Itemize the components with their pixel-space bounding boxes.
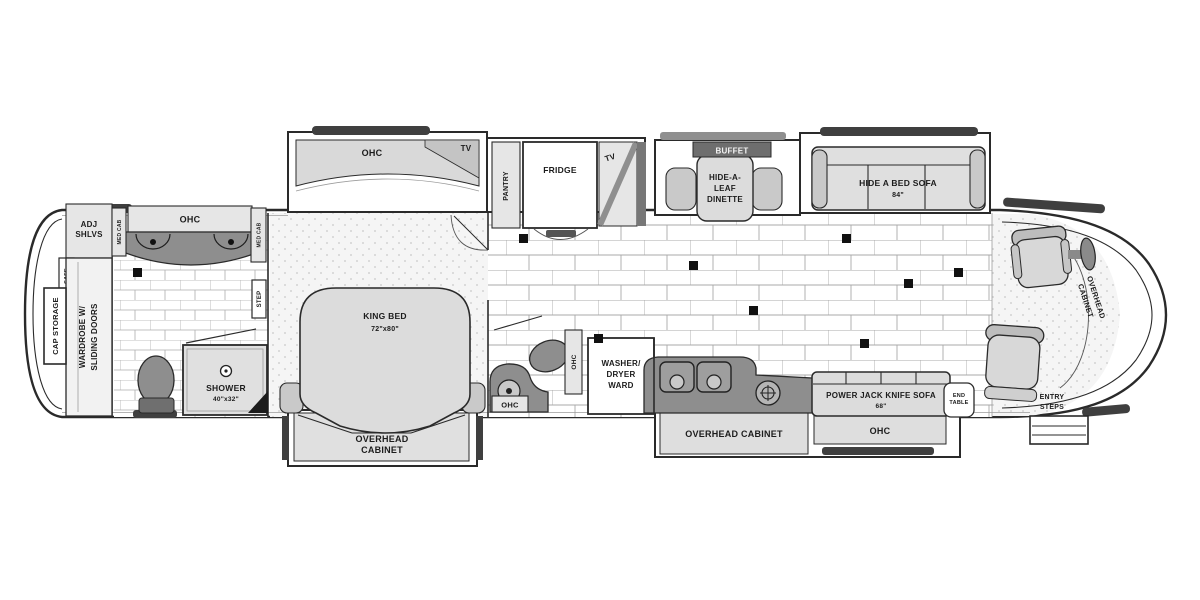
pantry-label: PANTRY [503,171,510,201]
adj-shlvs-label-2: SHLVS [75,230,103,239]
med-cab-left-label: MED CAB [117,219,123,244]
king-bed [300,288,470,433]
slide-bumper [820,127,978,136]
rv-floorplan: OHC TV PANTRY FRIDGE TV BUFFET HIDE-A- L… [0,0,1200,600]
ohc-slide-label: OHC [362,148,383,158]
power-sofa-label: POWER JACK KNIFE SOFA [826,391,936,400]
tile-accent [133,268,142,277]
slide-bumper [822,447,934,455]
end-table-label-2: TABLE [949,400,968,406]
dinette-chair-left [666,168,696,210]
floorplan-canvas: OHC TV PANTRY FRIDGE TV BUFFET HIDE-A- L… [0,0,1200,600]
wardrobe-label-1: WARDROBE W/ [78,305,87,368]
power-sofa-size-label: 68" [875,403,886,410]
adj-shlvs-label-1: ADJ [81,220,98,229]
end-table-label-1: END [953,393,965,399]
wall-segment [637,142,646,226]
bath-ohc-label: OHC [180,215,201,225]
passenger-seat [981,324,1044,402]
washer-label-3: WARD [608,381,633,390]
sink-drain [150,239,156,245]
kitchen-ohc-label: OVERHEAD CABINET [685,429,783,439]
bed-ohc-label-1: OVERHEAD [355,434,408,444]
slide-bumper [660,132,786,140]
buffet-label: BUFFET [715,147,748,156]
step-label: STEP [257,291,263,308]
slide-bumper [312,126,430,135]
sink-drain [506,388,512,394]
sofa-armrest [812,150,827,208]
toilet-tank [139,398,174,413]
shower-size-label: 40"x32" [213,396,239,403]
sofa-armrest [970,150,985,208]
shower-label: SHOWER [206,383,246,393]
slide-bumper [282,416,289,460]
fridge [523,142,597,228]
half-bath-ohc-label: OHC [571,354,578,369]
dinette-chair-right [752,168,782,210]
shower-drain-dot [224,369,227,372]
wardrobe [66,258,112,416]
toilet-icon [138,356,174,404]
dinette-label-3: DINETTE [707,195,743,204]
king-bed-label: KING BED [363,311,407,321]
sink-drain [707,375,721,389]
entry-steps-label-1: ENTRY [1040,394,1065,401]
tv-slide-label: TV [461,144,472,153]
hide-a-bed-size: 84" [892,192,904,199]
sink-drain [670,375,684,389]
dinette-label-2: LEAF [714,184,736,193]
half-bath-ohc-base-label: OHC [501,401,519,410]
sink-drain [228,239,234,245]
shower [183,345,267,415]
fridge-label: FRIDGE [543,165,577,175]
entry-steps [1030,416,1088,444]
bed-ohc-label-2: CABINET [361,445,403,455]
washer-label-1: WASHER/ [601,359,641,368]
hide-a-bed-label: HIDE A BED SOFA [859,178,937,188]
entry-steps-label-2: STEPS [1040,404,1064,411]
cap-storage-label: CAP STORAGE [51,297,60,354]
washer-label-2: DRYER [607,370,636,379]
driver-seat [1009,225,1073,289]
fridge-handle [546,230,576,237]
slide-bumper [476,416,483,460]
sofa-ohc-label: OHC [870,426,891,436]
dinette-label-1: HIDE-A- [709,173,741,182]
med-cab-right-label: MED CAB [257,222,263,247]
wardrobe-label-2: SLIDING DOORS [90,303,99,371]
king-bed-size-label: 72"x80" [371,326,399,333]
